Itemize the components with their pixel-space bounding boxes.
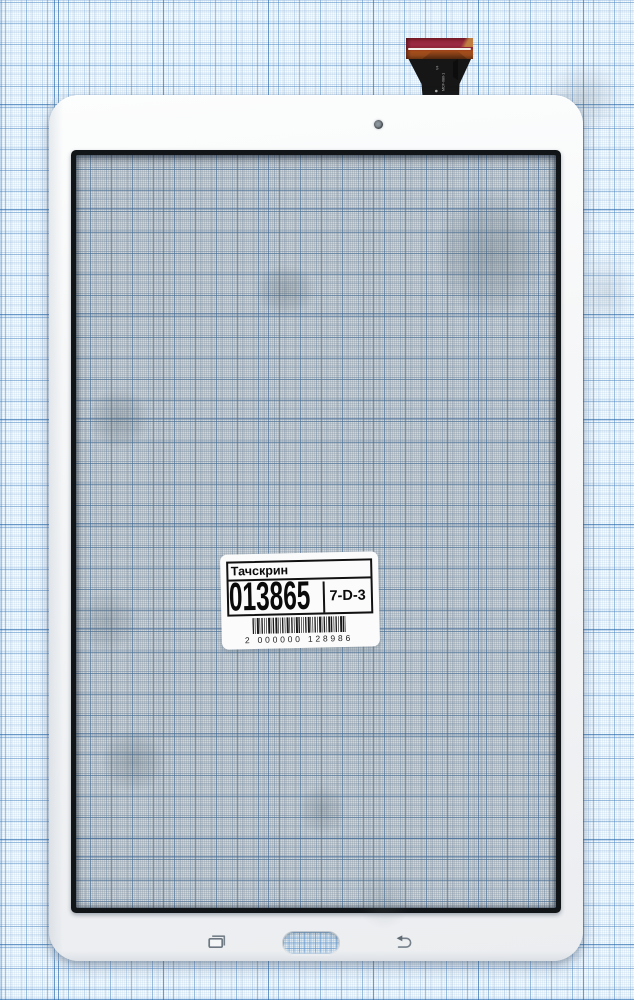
svg-text:V4: V4 bbox=[435, 66, 439, 70]
svg-text:MCF-080-1: MCF-080-1 bbox=[441, 73, 445, 91]
